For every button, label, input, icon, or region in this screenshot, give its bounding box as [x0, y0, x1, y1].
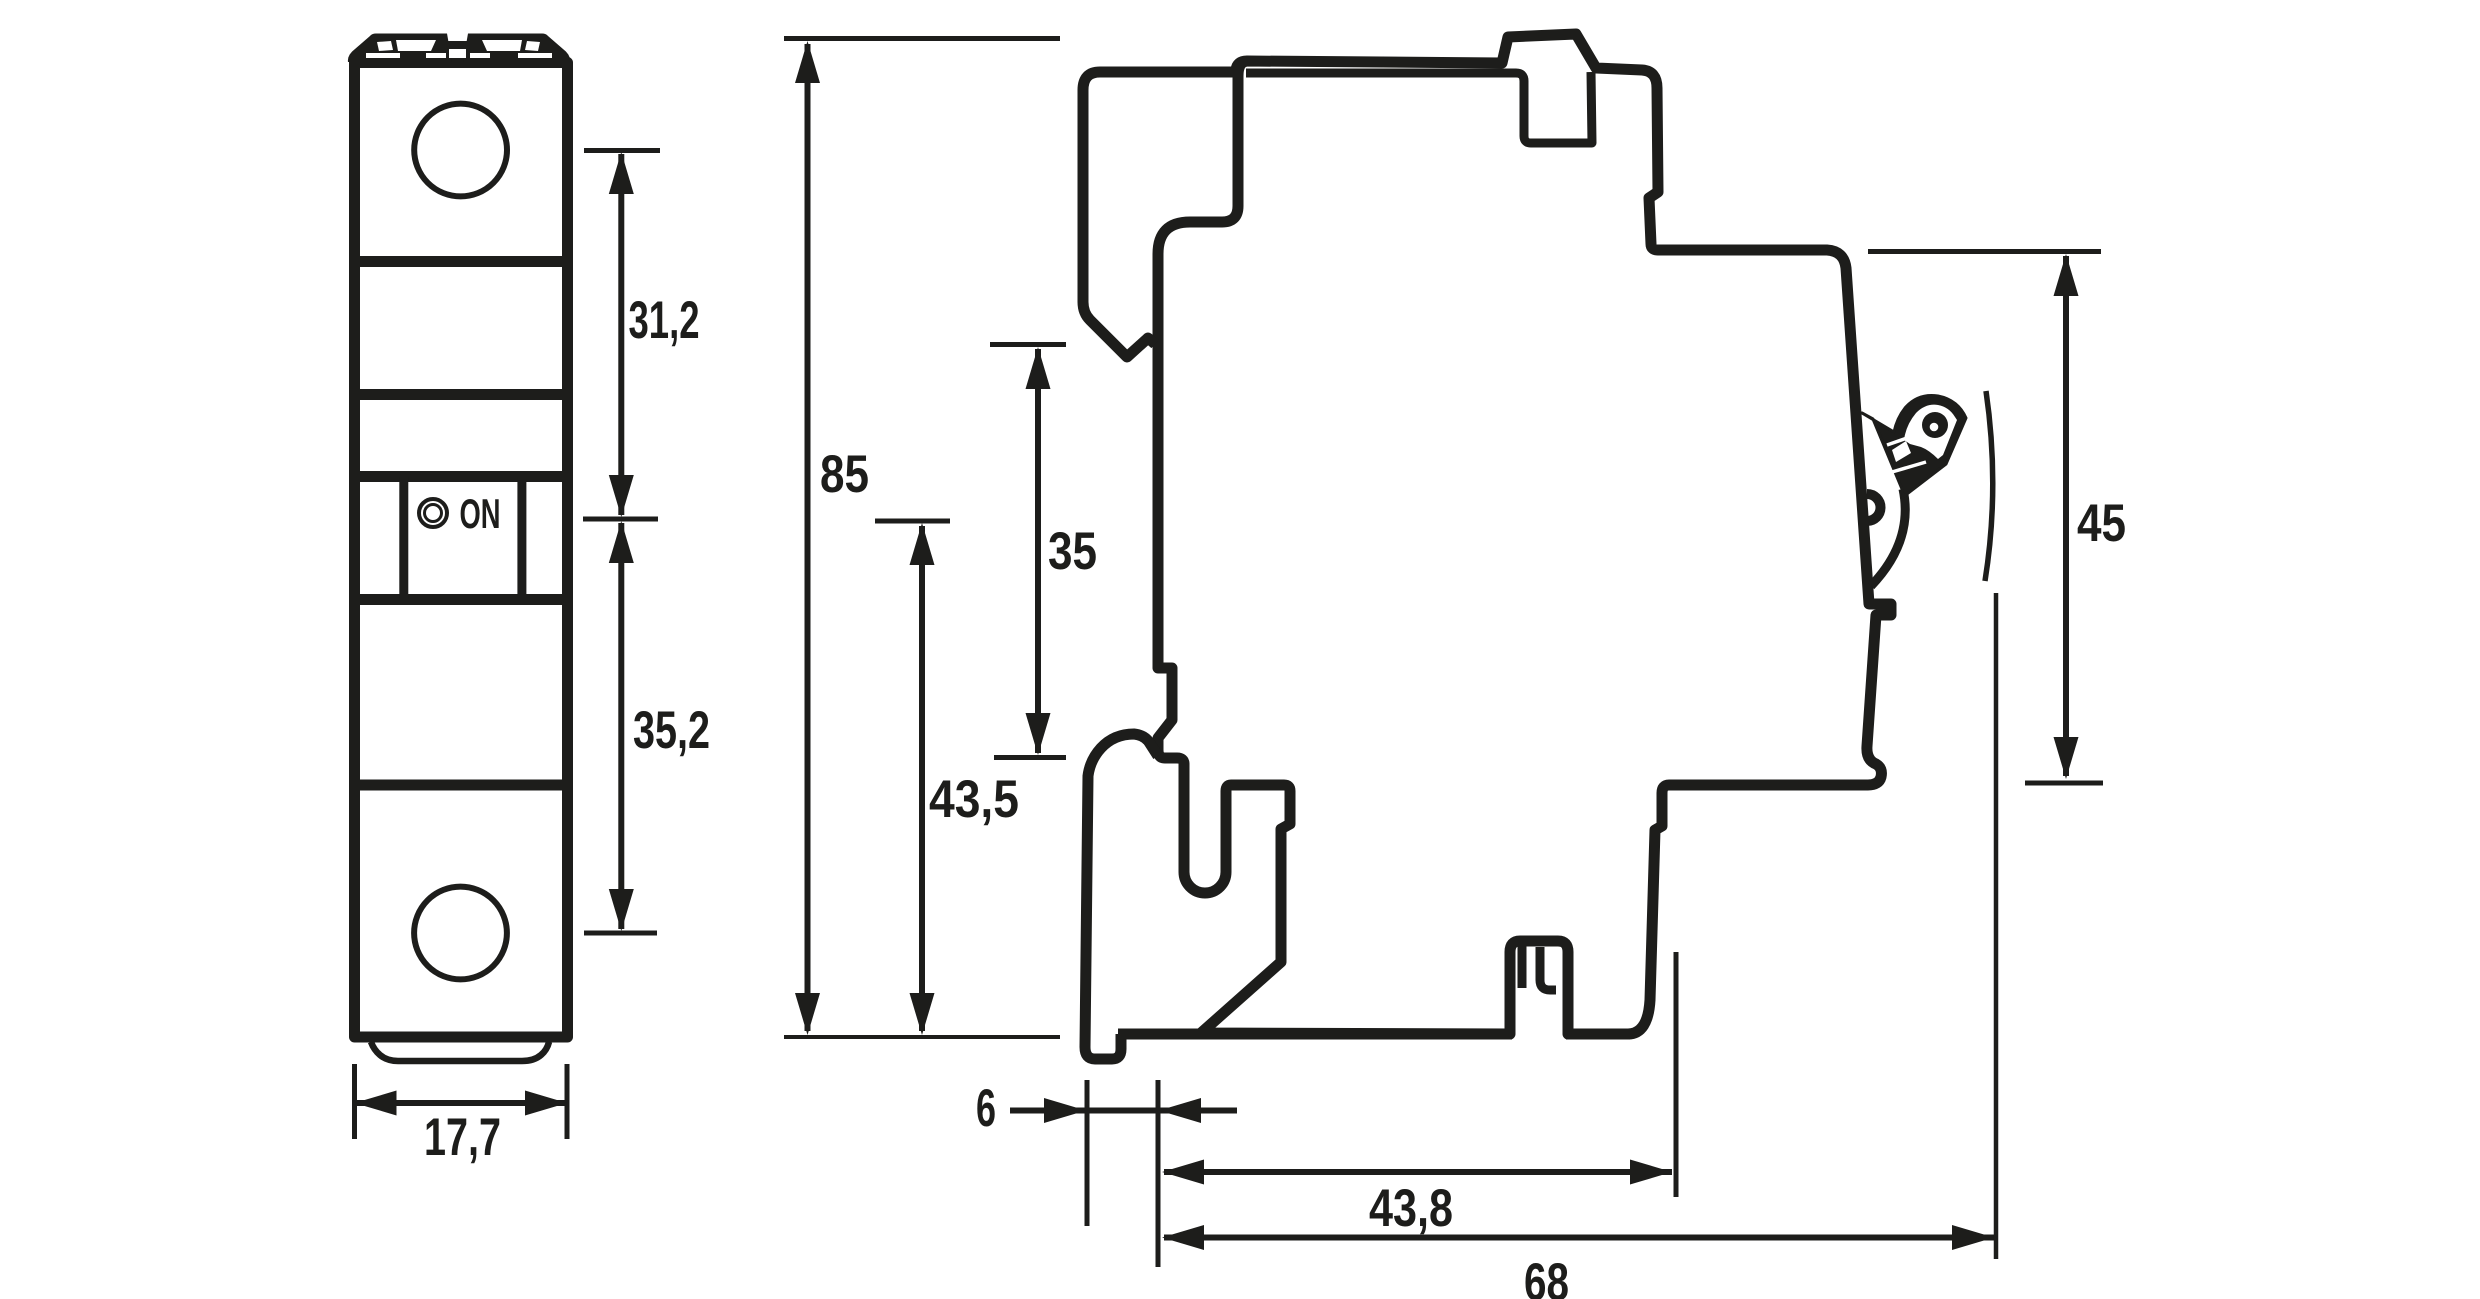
- svg-text:85: 85: [820, 445, 869, 504]
- svg-text:ON: ON: [460, 490, 501, 537]
- svg-text:43,5: 43,5: [929, 770, 1019, 829]
- svg-text:17,7: 17,7: [424, 1108, 501, 1167]
- svg-text:6: 6: [976, 1079, 996, 1138]
- svg-text:45: 45: [2077, 494, 2126, 553]
- svg-text:68: 68: [1524, 1253, 1569, 1299]
- svg-text:43,8: 43,8: [1369, 1179, 1453, 1238]
- svg-text:35: 35: [1048, 522, 1097, 581]
- svg-text:35,2: 35,2: [633, 701, 710, 760]
- svg-text:31,2: 31,2: [629, 291, 700, 350]
